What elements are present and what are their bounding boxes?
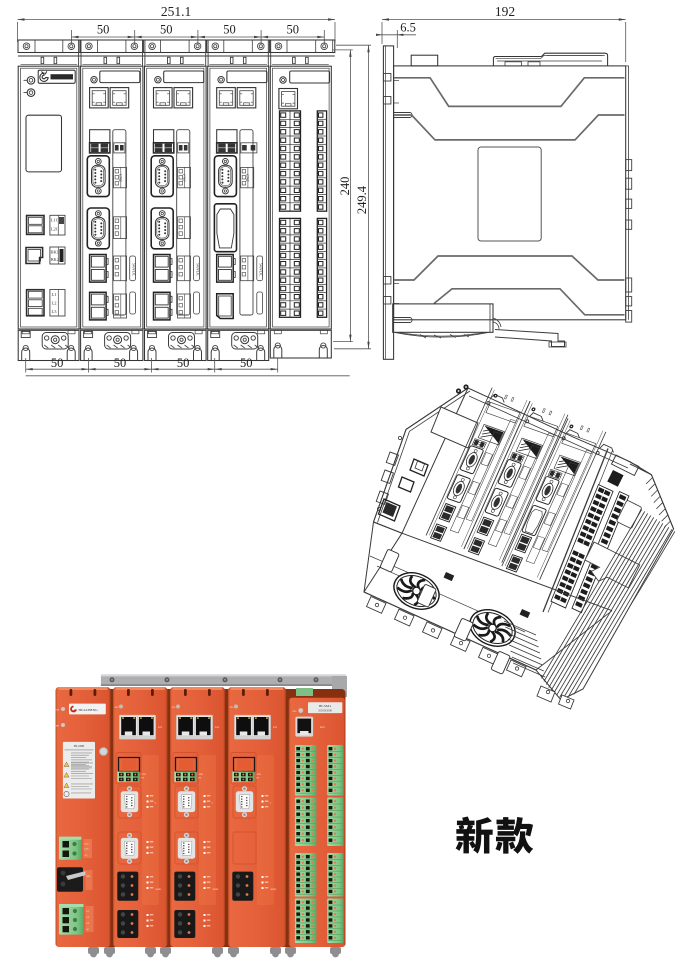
svg-text:240: 240 <box>338 177 352 196</box>
svg-text:L2C: L2C <box>85 848 90 851</box>
svg-text:50: 50 <box>51 356 64 370</box>
svg-text:PCN: PCN <box>273 727 278 729</box>
svg-text:50: 50 <box>97 23 110 37</box>
svg-text:STA: STA <box>115 706 119 709</box>
svg-text:RUN: RUN <box>320 727 325 729</box>
svg-text:STO: STO <box>257 774 262 776</box>
svg-text:L1: L1 <box>52 292 57 297</box>
svg-text:PCB: PCB <box>55 710 60 712</box>
svg-text:192: 192 <box>495 4 515 19</box>
svg-text:50: 50 <box>114 356 127 370</box>
svg-text:PCN: PCN <box>215 727 220 729</box>
svg-text:50: 50 <box>177 356 190 370</box>
svg-text:STA: STA <box>230 706 234 709</box>
svg-text:HC-SSA1: HC-SSA1 <box>319 704 332 708</box>
svg-text:HUACHENG: HUACHENG <box>79 708 99 712</box>
svg-text:6.5: 6.5 <box>400 21 416 35</box>
svg-text:STA: STA <box>293 710 297 713</box>
svg-text:540VDC: 540VDC <box>213 889 219 891</box>
svg-text:STO: STO <box>199 774 204 776</box>
svg-text:BK2: BK2 <box>51 257 59 262</box>
svg-text:STA: STA <box>172 706 176 709</box>
svg-text:249.4: 249.4 <box>355 185 369 214</box>
svg-text:BK: BK <box>87 875 91 878</box>
svg-text:BK1: BK1 <box>51 250 59 255</box>
svg-text:505050503B: 505050503B <box>318 710 332 713</box>
svg-text:L1C: L1C <box>85 843 90 846</box>
svg-text:L2C: L2C <box>51 227 59 232</box>
svg-text:540VDC: 540VDC <box>156 889 162 891</box>
svg-text:540VDC: 540VDC <box>132 263 136 277</box>
svg-text:L1C: L1C <box>51 218 59 223</box>
svg-text:50: 50 <box>240 356 253 370</box>
svg-text:PS-1000: PS-1000 <box>74 744 85 748</box>
svg-text:L3: L3 <box>52 309 58 314</box>
svg-text:540VDC: 540VDC <box>196 263 200 277</box>
svg-text:PCN: PCN <box>158 727 163 729</box>
svg-text:AC: AC <box>86 928 90 931</box>
svg-text:251.1: 251.1 <box>161 4 191 19</box>
svg-text:STO: STO <box>142 774 147 776</box>
svg-text:50: 50 <box>160 23 173 37</box>
svg-text:AC: AC <box>85 854 89 857</box>
svg-text:CN2: CN2 <box>118 174 123 182</box>
svg-text:CN2: CN2 <box>182 174 187 182</box>
svg-text:50: 50 <box>286 23 299 37</box>
svg-text:50: 50 <box>223 23 236 37</box>
svg-text:CN2: CN2 <box>245 174 250 182</box>
svg-text:DIN: DIN <box>55 726 59 728</box>
svg-text:540VDC: 540VDC <box>271 889 277 891</box>
svg-text:540VDC: 540VDC <box>259 263 263 277</box>
svg-text:L2: L2 <box>52 300 57 305</box>
